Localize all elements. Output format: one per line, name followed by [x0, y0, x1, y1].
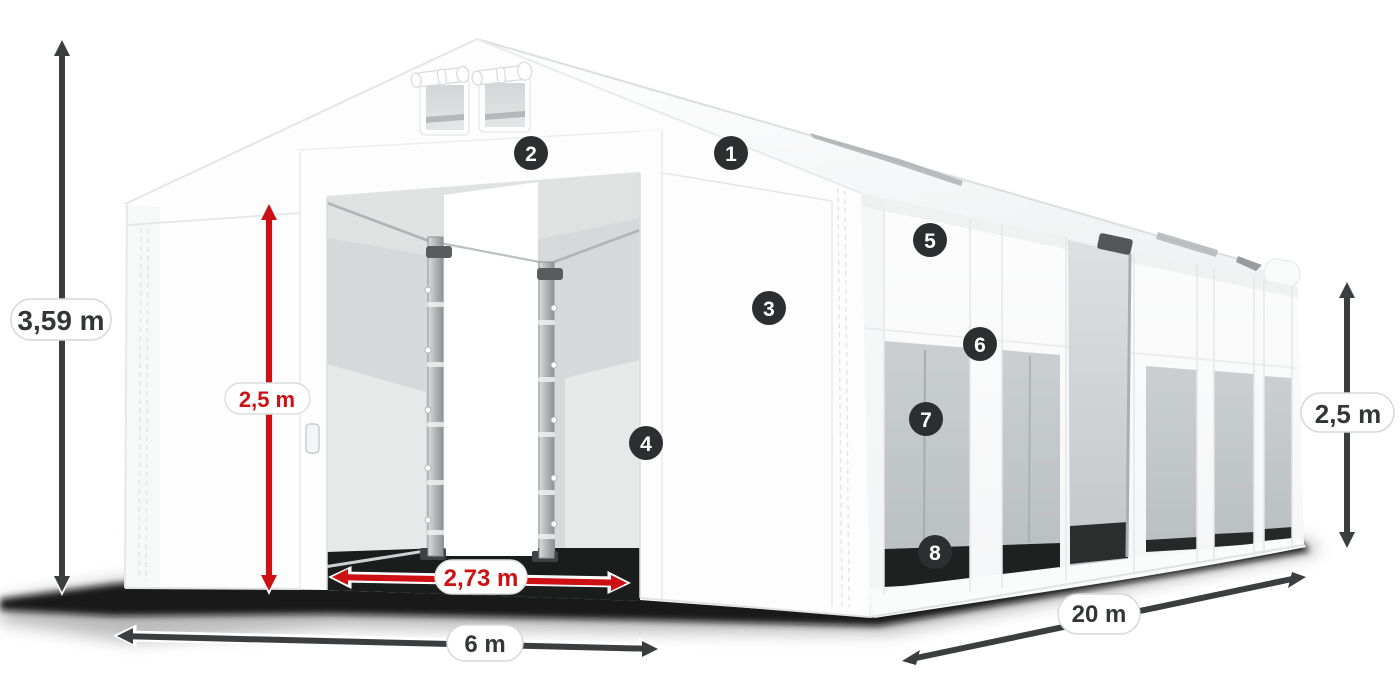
svg-text:7: 7 — [920, 409, 932, 432]
svg-text:4: 4 — [640, 433, 652, 456]
svg-text:6: 6 — [974, 334, 986, 357]
svg-text:2,73 m: 2,73 m — [444, 565, 519, 592]
svg-text:2: 2 — [525, 143, 537, 166]
svg-text:3,59 m: 3,59 m — [17, 305, 104, 336]
svg-text:3: 3 — [763, 298, 775, 321]
svg-text:20 m: 20 m — [1072, 601, 1127, 628]
svg-text:2,5 m: 2,5 m — [1315, 399, 1382, 429]
svg-text:5: 5 — [924, 230, 936, 253]
svg-text:1: 1 — [725, 143, 737, 166]
svg-text:2,5 m: 2,5 m — [239, 387, 295, 412]
svg-text:8: 8 — [929, 542, 941, 565]
svg-text:6 m: 6 m — [464, 631, 505, 658]
